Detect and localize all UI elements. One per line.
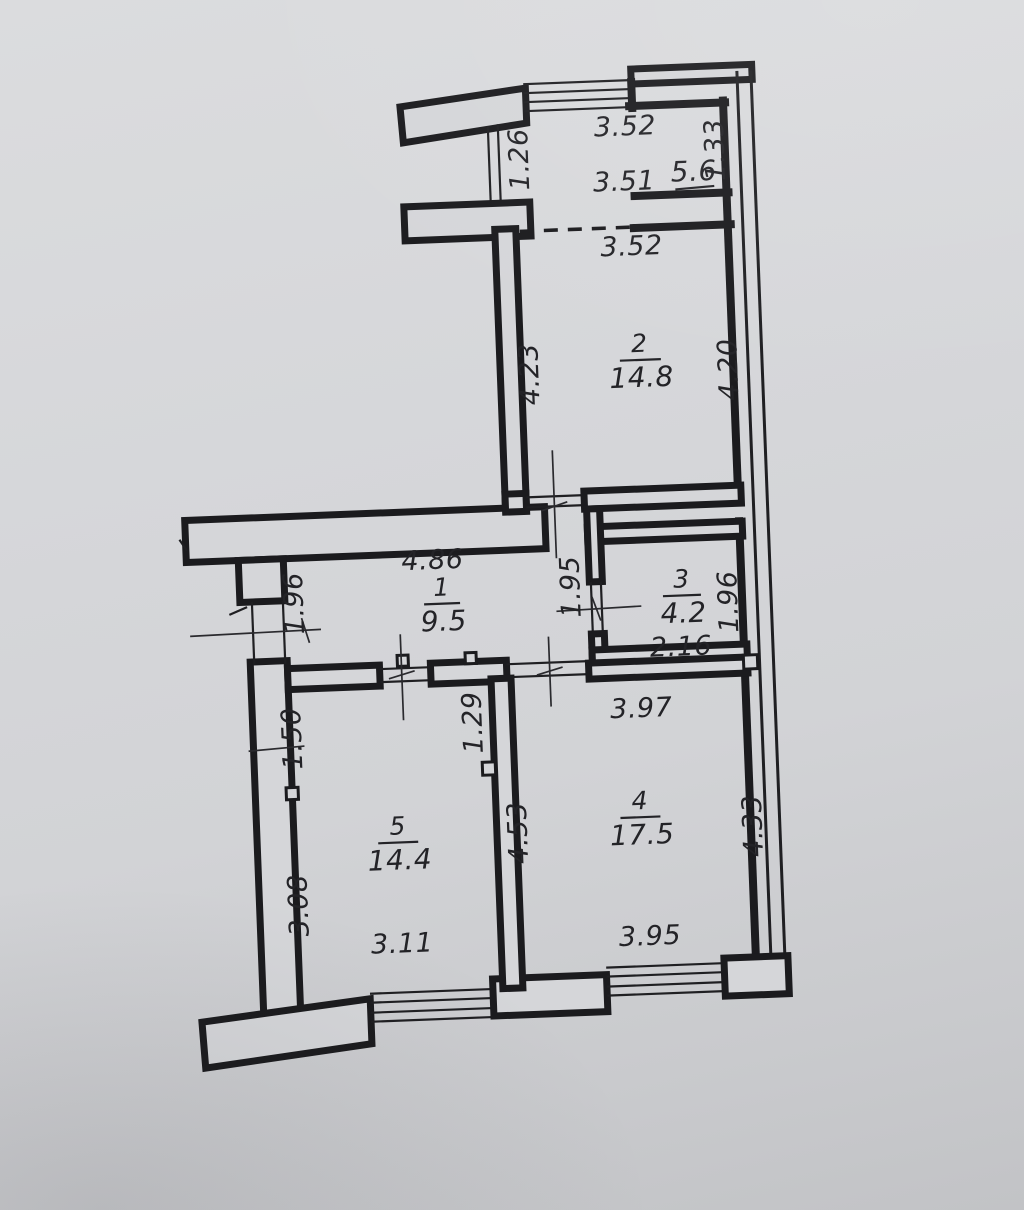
floor-plan-photo: 3.52 1.26 1.33 5.6 3.51 3.52 4.23 4.20 4… bbox=[0, 0, 1024, 1210]
dim-balcony-length: 3.51 bbox=[592, 165, 655, 198]
dim-room3-width: 2.16 bbox=[649, 630, 712, 663]
dim-room3-right: 1.96 bbox=[712, 570, 745, 633]
room4-area: 17.5 bbox=[609, 817, 675, 852]
exterior-walls bbox=[162, 64, 791, 1068]
dim-room4-right: 4.33 bbox=[737, 794, 770, 857]
dim-room5-partition-upper: 1.29 bbox=[456, 691, 489, 754]
room-labels: 1 9.5 2 14.8 3 4.2 4 17.5 5 14.4 bbox=[348, 327, 717, 878]
dim-room2-right: 4.20 bbox=[712, 338, 745, 401]
room5-area: 14.4 bbox=[367, 842, 433, 877]
dim-room4-top: 3.97 bbox=[610, 692, 673, 725]
room1-area: 9.5 bbox=[420, 604, 467, 639]
room4-window bbox=[606, 963, 727, 996]
dim-room4-partition: 4.53 bbox=[502, 801, 535, 864]
dim-room5-left-upper: 1.50 bbox=[276, 707, 309, 770]
dim-top-window: 3.52 bbox=[593, 110, 656, 143]
dim-balcony-partition: 1.26 bbox=[503, 128, 536, 191]
dim-room1-left: 1.96 bbox=[278, 572, 311, 635]
balcony-area-label: 5.6 bbox=[670, 154, 717, 189]
room4-number: 4 bbox=[631, 786, 649, 816]
dim-room2-opening: 3.52 bbox=[600, 230, 663, 263]
dim-room5-bottom: 3.11 bbox=[370, 927, 433, 960]
room3-area: 4.2 bbox=[660, 596, 707, 631]
room3-number: 3 bbox=[673, 564, 691, 594]
room1-number: 1 bbox=[433, 572, 451, 602]
dim-room2-left: 4.23 bbox=[513, 343, 546, 406]
balcony-window bbox=[523, 80, 634, 111]
floor-plan-canvas: 3.52 1.26 1.33 5.6 3.51 3.52 4.23 4.20 4… bbox=[0, 0, 1024, 1210]
room5-window bbox=[370, 989, 496, 1022]
room5-number: 5 bbox=[389, 811, 407, 841]
dim-room5-left-lower: 3.08 bbox=[282, 874, 315, 937]
room2-number: 2 bbox=[630, 329, 648, 359]
room2-area: 14.8 bbox=[609, 360, 675, 395]
dim-room3-door-side: 1.95 bbox=[554, 555, 587, 618]
dim-room4-bottom: 3.95 bbox=[618, 920, 681, 953]
